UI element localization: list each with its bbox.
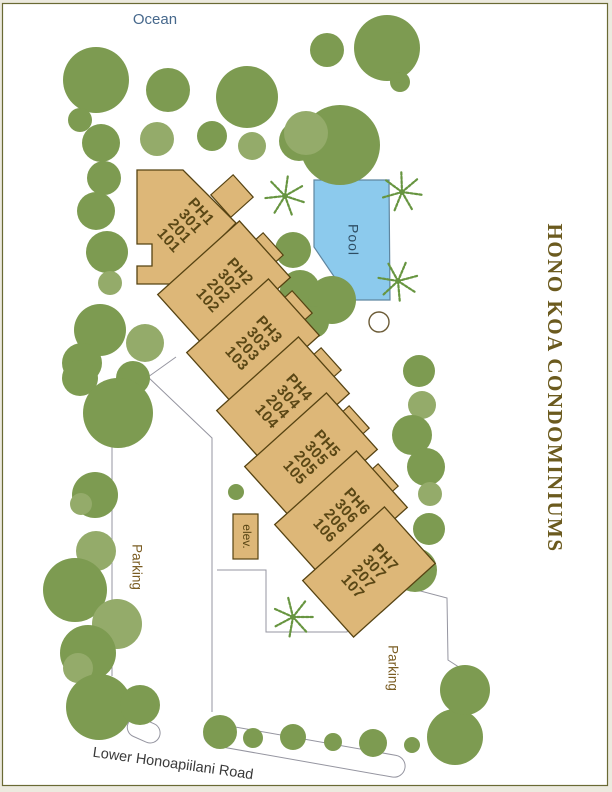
tree-icon [354,15,420,81]
tree-icon [82,124,120,162]
spa-circle [369,312,389,332]
tree-icon [359,729,387,757]
tree-icon [403,355,435,387]
site-plan-map: PH1301201101PH2302202102PH3303203103PH43… [0,0,612,792]
parking-label-east: Parking [385,645,400,691]
tree-icon [77,192,115,230]
tree-icon [413,513,445,545]
tree-icon [310,33,344,67]
tree-icon [275,232,311,268]
palm-trunk [399,189,405,195]
tree-icon [390,72,410,92]
tree-icon [197,121,227,151]
tree-icon [83,378,153,448]
tree-icon [404,737,420,753]
tree-icon [70,493,92,515]
tree-icon [68,108,92,132]
tree-icon [120,685,160,725]
tree-icon [243,728,263,748]
tree-icon [324,733,342,751]
palm-frond [401,172,402,192]
tree-icon [418,482,442,506]
elevator-label: elev. [240,524,254,548]
tree-icon [140,122,174,156]
tree-icon [440,665,490,715]
tree-icon [238,132,266,160]
tree-icon [427,709,483,765]
tree-icon [86,231,128,273]
tree-icon [284,111,328,155]
tree-icon [216,66,278,128]
ocean-label: Ocean [133,11,177,28]
site-title: HONO KOA CONDOMINIUMS [543,223,567,552]
tree-icon [280,724,306,750]
tree-icon [126,324,164,362]
tree-icon [203,715,237,749]
tree-icon [228,484,244,500]
tree-icon [408,391,436,419]
parking-label-west: Parking [129,544,144,590]
pool-label: Pool [345,224,361,256]
tree-icon [87,161,121,195]
tree-icon [63,47,129,113]
tree-icon [407,448,445,486]
tree-icon [98,271,122,295]
tree-icon [146,68,190,112]
